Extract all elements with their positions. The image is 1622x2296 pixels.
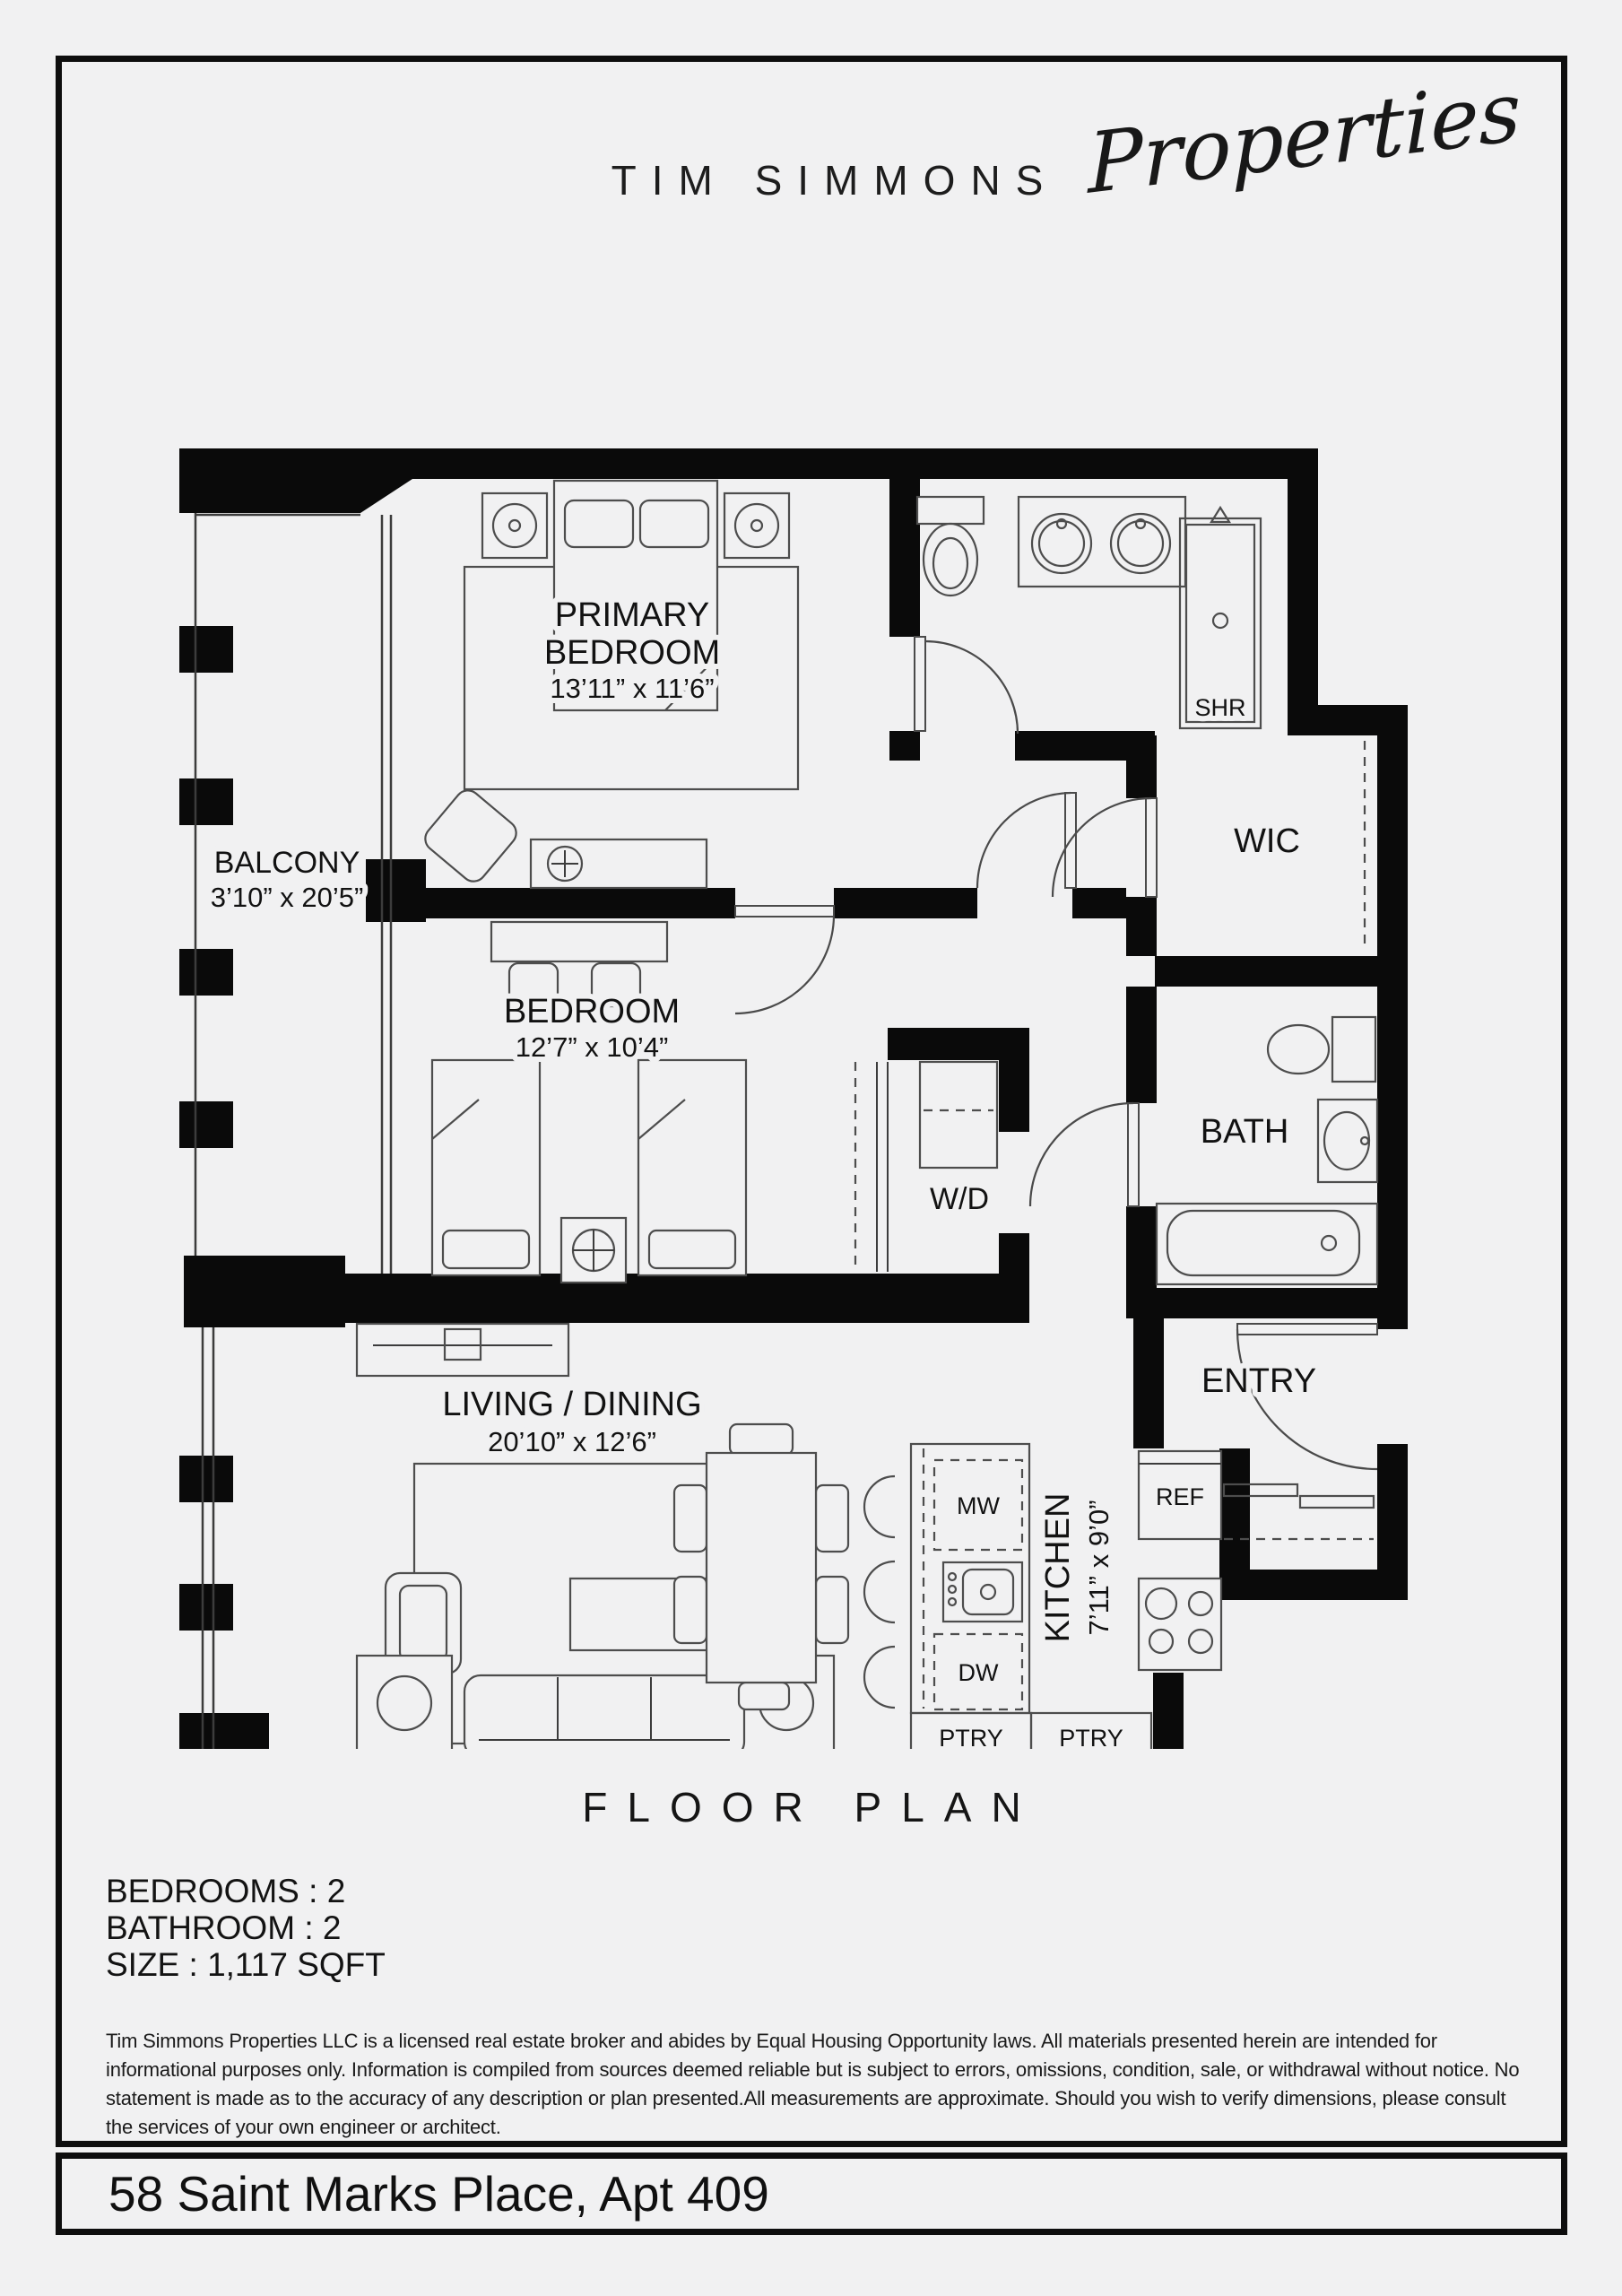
label-entry: ENTRY <box>1201 1362 1316 1400</box>
floor-plan-svg: PRIMARY BEDROOM 13’11” x 11’6” BALCONY 3… <box>117 422 1551 1749</box>
brand-name: TIM SIMMONS <box>612 124 1059 204</box>
detail-size: SIZE : 1,117 SQFT <box>106 1946 386 1983</box>
label-bedroom: BEDROOM <box>504 993 680 1031</box>
floor-plan-drawing: PRIMARY BEDROOM 13’11” x 11’6” BALCONY 3… <box>117 422 1551 1749</box>
label-wic: WIC <box>1234 822 1300 860</box>
label-ref: REF <box>1156 1483 1204 1510</box>
detail-bathroom: BATHROOM : 2 <box>106 1909 386 1946</box>
label-primary-bedroom-dims: 13’11” x 11’6” <box>550 673 714 704</box>
legal-disclaimer: Tim Simmons Properties LLC is a licensed… <box>106 2027 1533 2142</box>
floor-plan-title: FLOOR PLAN <box>56 1783 1567 1831</box>
label-living-dining: LIVING / DINING <box>442 1386 701 1423</box>
label-balcony: BALCONY <box>214 846 360 880</box>
label-balcony-dims: 3’10” x 20’5” <box>211 882 364 913</box>
floorplan-page: TIM SIMMONS Properties <box>0 0 1622 2296</box>
label-primary-bedroom-line2: BEDROOM <box>544 634 720 672</box>
label-shr: SHR <box>1194 694 1245 721</box>
unit-details: BEDROOMS : 2 BATHROOM : 2 SIZE : 1,117 S… <box>106 1873 386 1983</box>
label-dw: DW <box>958 1659 999 1686</box>
label-mw: MW <box>957 1492 1000 1519</box>
detail-bedrooms: BEDROOMS : 2 <box>106 1873 386 1909</box>
property-address: 58 Saint Marks Place, Apt 409 <box>108 2165 769 2222</box>
address-footer-bar: 58 Saint Marks Place, Apt 409 <box>56 2152 1567 2235</box>
label-wd: W/D <box>930 1182 989 1216</box>
label-kitchen-dims: 7’11” x 9’0” <box>1083 1500 1115 1635</box>
label-bedroom-dims: 12’7” x 10’4” <box>516 1031 669 1063</box>
label-ptry-left: PTRY <box>939 1725 1003 1749</box>
label-primary-bedroom-line1: PRIMARY <box>555 596 709 634</box>
label-kitchen: KITCHEN <box>1039 1493 1077 1643</box>
label-living-dining-dims: 20’10” x 12’6” <box>488 1426 656 1457</box>
brand-logo: TIM SIMMONS Properties <box>612 124 1525 206</box>
label-bath: BATH <box>1201 1113 1289 1151</box>
label-ptry-right: PTRY <box>1059 1725 1123 1749</box>
